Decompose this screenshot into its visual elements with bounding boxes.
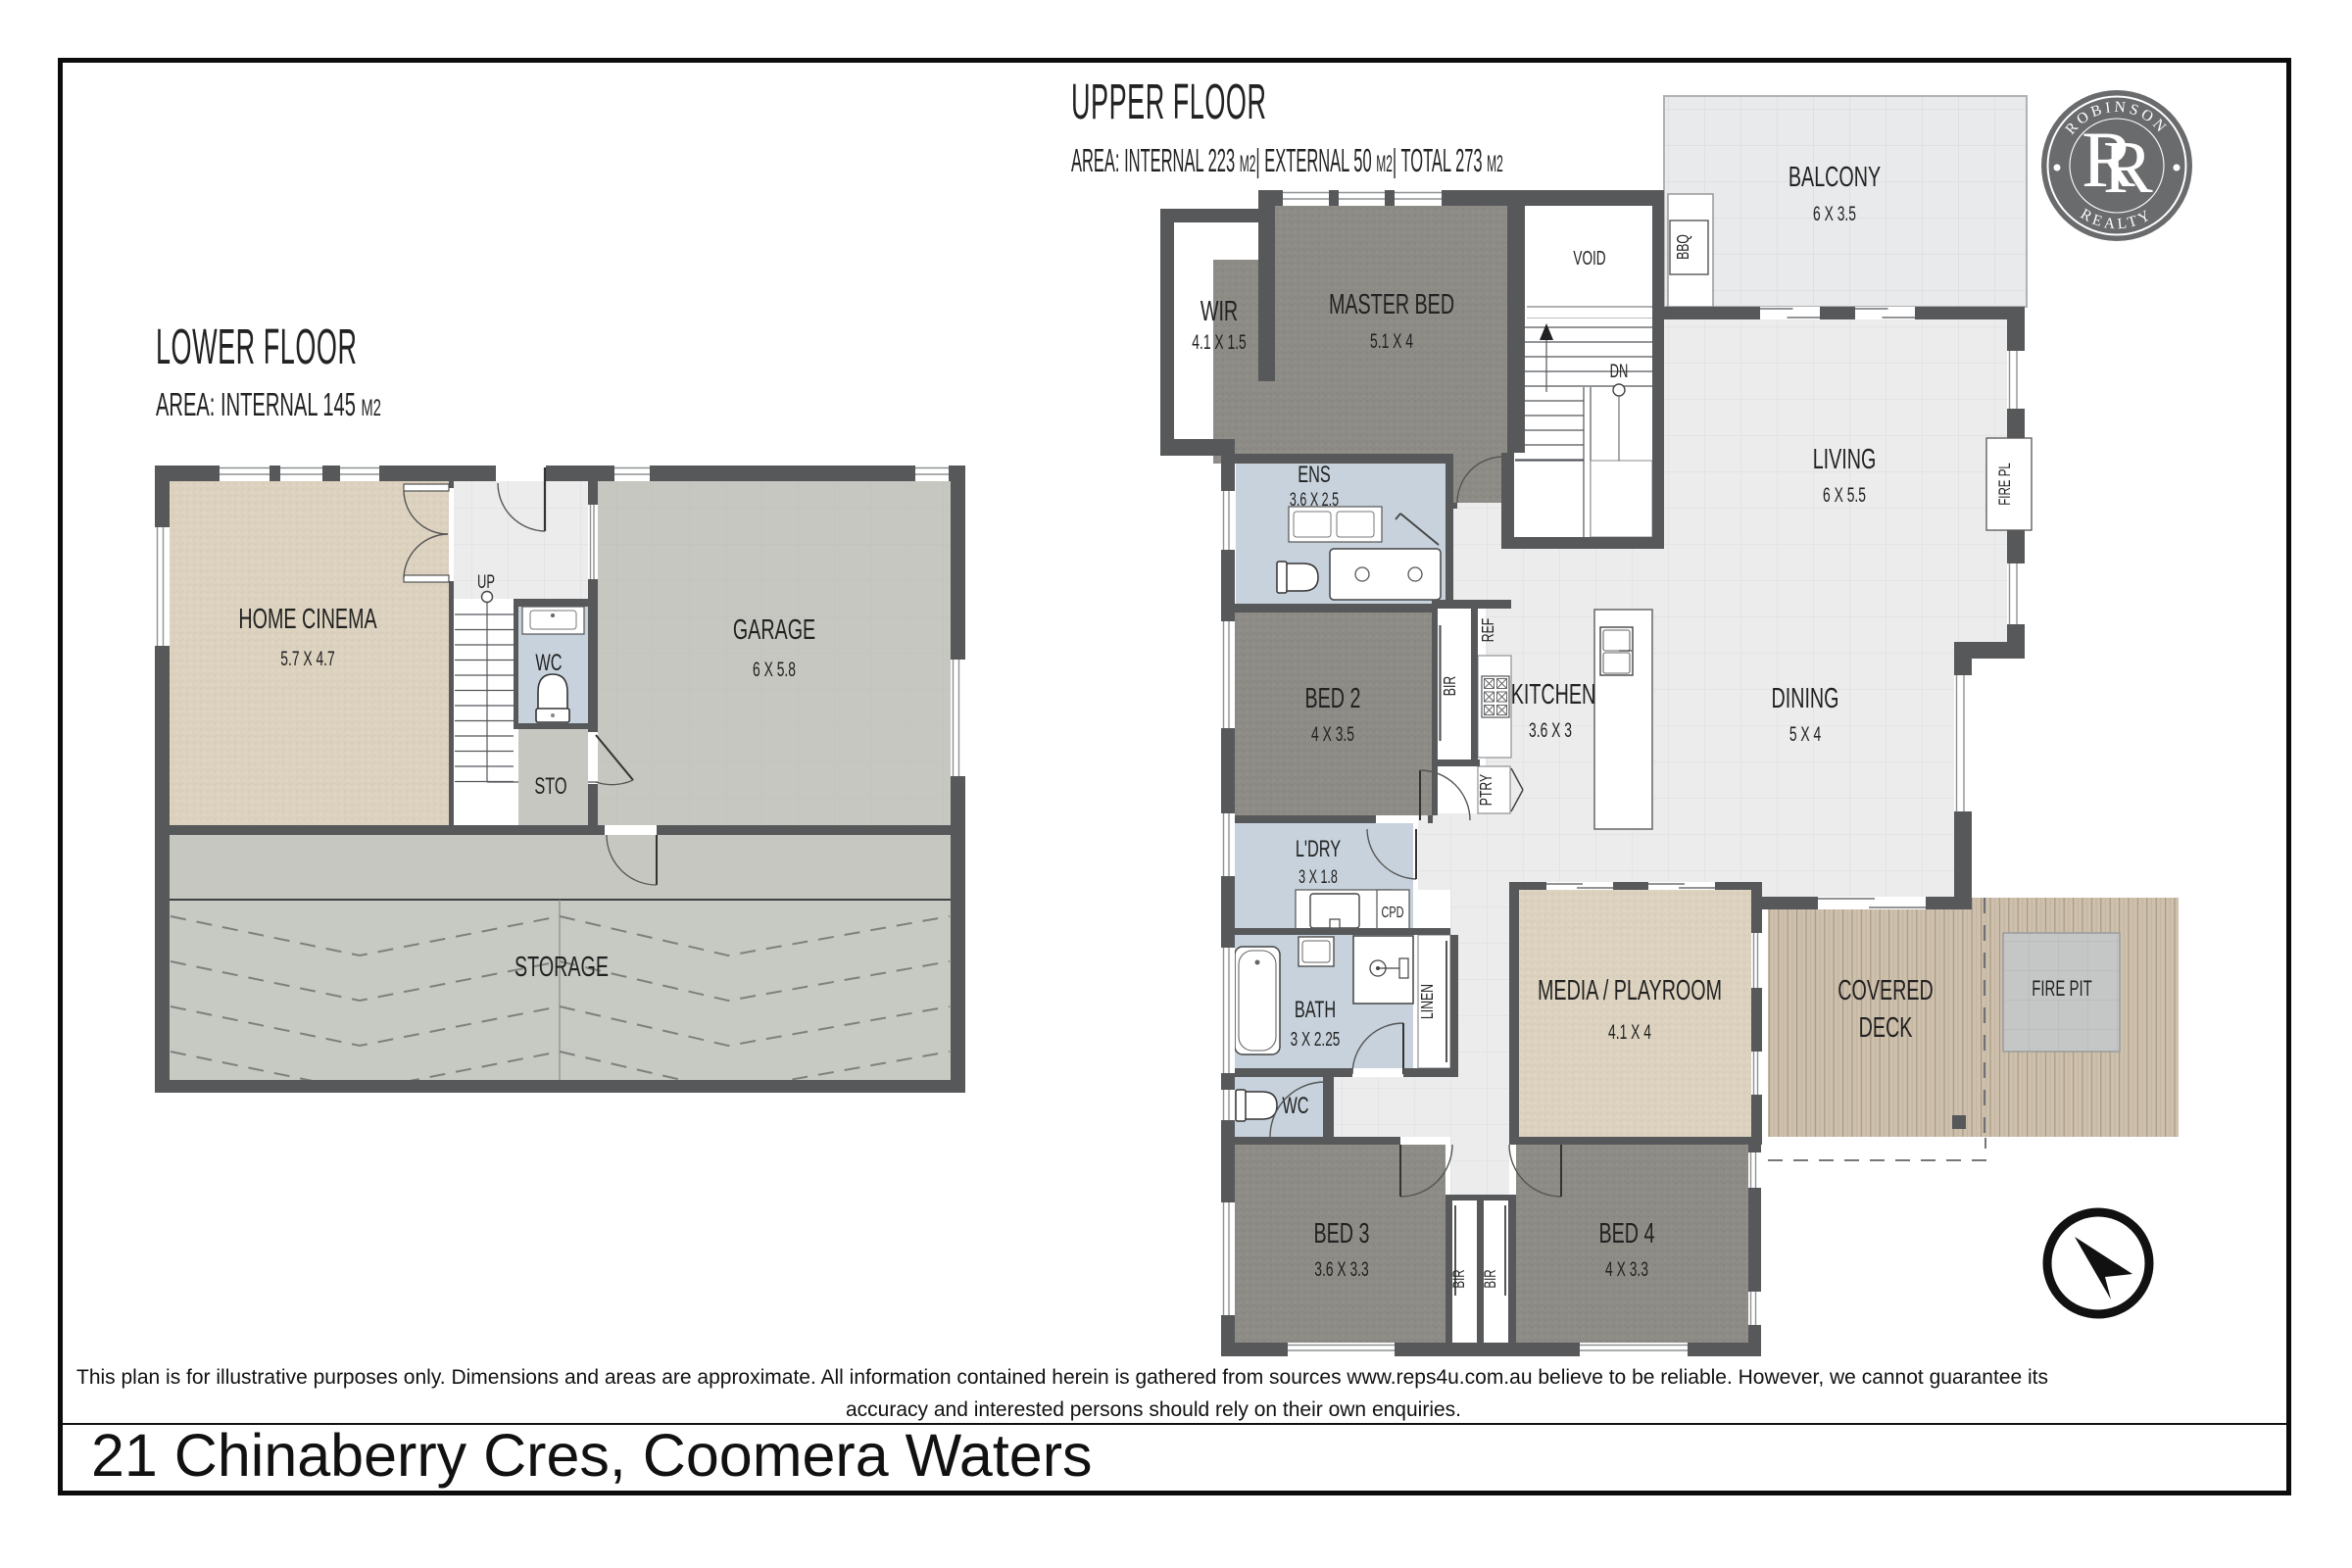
svg-text:5 X 4: 5 X 4: [1789, 722, 1821, 746]
svg-text:6 X 5.8: 6 X 5.8: [753, 658, 796, 681]
svg-text:KITCHEN: KITCHEN: [1511, 679, 1596, 710]
svg-text:3 X 1.8: 3 X 1.8: [1298, 866, 1338, 887]
svg-text:UPPER FLOOR: UPPER FLOOR: [1071, 73, 1266, 129]
svg-text:HOME CINEMA: HOME CINEMA: [238, 604, 377, 635]
svg-text:DECK: DECK: [1859, 1012, 1913, 1044]
svg-text:MEDIA / PLAYROOM: MEDIA / PLAYROOM: [1538, 975, 1722, 1006]
svg-text:WC: WC: [535, 650, 562, 676]
svg-text:ENS: ENS: [1298, 462, 1331, 488]
svg-text:3 X 2.25: 3 X 2.25: [1291, 1028, 1341, 1050]
svg-text:BED 2: BED 2: [1305, 683, 1361, 714]
svg-text:BIR: BIR: [1482, 1269, 1500, 1288]
svg-text:AREA: INTERNAL 223 M2| EXTERNA: AREA: INTERNAL 223 M2| EXTERNAL 50 M2| T…: [1071, 142, 1503, 179]
svg-text:AREA: INTERNAL 145 M2: AREA: INTERNAL 145 M2: [156, 386, 381, 422]
svg-text:This plan is for illustrative: This plan is for illustrative purposes o…: [76, 1366, 2048, 1389]
svg-text:COVERED: COVERED: [1837, 975, 1933, 1006]
svg-text:4 X 3.5: 4 X 3.5: [1311, 722, 1354, 746]
svg-text:accuracy and interested person: accuracy and interested persons should r…: [846, 1398, 1461, 1421]
svg-text:BED 3: BED 3: [1314, 1218, 1370, 1249]
svg-text:STORAGE: STORAGE: [514, 952, 609, 983]
svg-text:STO: STO: [534, 773, 566, 800]
svg-text:PTRY: PTRY: [1477, 774, 1496, 806]
svg-text:DN: DN: [1610, 362, 1629, 382]
svg-text:BIR: BIR: [1441, 676, 1460, 696]
svg-text:3.6 X 3.3: 3.6 X 3.3: [1314, 1257, 1369, 1281]
svg-text:4 X 3.3: 4 X 3.3: [1605, 1257, 1648, 1281]
svg-text:5.1 X 4: 5.1 X 4: [1370, 329, 1413, 353]
svg-text:BALCONY: BALCONY: [1788, 162, 1881, 193]
svg-text:LIVING: LIVING: [1813, 444, 1877, 475]
svg-text:BED 4: BED 4: [1599, 1218, 1655, 1249]
svg-text:3.6 X 2.5: 3.6 X 2.5: [1290, 489, 1339, 510]
svg-text:BATH: BATH: [1295, 997, 1336, 1023]
svg-text:MASTER BED: MASTER BED: [1329, 289, 1454, 320]
svg-text:5.7 X 4.7: 5.7 X 4.7: [280, 647, 334, 670]
svg-text:BIR: BIR: [1450, 1269, 1469, 1288]
svg-text:REF: REF: [1479, 618, 1498, 642]
svg-text:GARAGE: GARAGE: [733, 614, 815, 646]
svg-text:4.1 X 4: 4.1 X 4: [1608, 1020, 1651, 1044]
svg-text:UP: UP: [477, 572, 495, 593]
svg-text:BBQ: BBQ: [1674, 234, 1693, 260]
svg-text:WC: WC: [1282, 1093, 1308, 1119]
svg-text:R: R: [2103, 126, 2153, 209]
svg-text:6 X 3.5: 6 X 3.5: [1813, 202, 1856, 225]
svg-text:4.1 X 1.5: 4.1 X 1.5: [1192, 330, 1247, 354]
svg-text:LINEN: LINEN: [1418, 984, 1438, 1019]
svg-text:WIR: WIR: [1200, 296, 1238, 327]
svg-text:L'DRY: L'DRY: [1296, 836, 1342, 862]
svg-text:6 X 5.5: 6 X 5.5: [1823, 483, 1866, 507]
svg-text:FIRE PL: FIRE PL: [1996, 463, 2015, 506]
svg-text:21 Chinaberry Cres, Coomera Wa: 21 Chinaberry Cres, Coomera Waters: [91, 1422, 1093, 1489]
svg-text:FIRE PIT: FIRE PIT: [2032, 976, 2092, 1001]
svg-text:CPD: CPD: [1382, 904, 1404, 921]
svg-text:VOID: VOID: [1573, 247, 1605, 269]
svg-text:LOWER FLOOR: LOWER FLOOR: [156, 318, 357, 374]
svg-text:3.6 X 3: 3.6 X 3: [1529, 718, 1572, 742]
svg-text:DINING: DINING: [1772, 683, 1839, 714]
